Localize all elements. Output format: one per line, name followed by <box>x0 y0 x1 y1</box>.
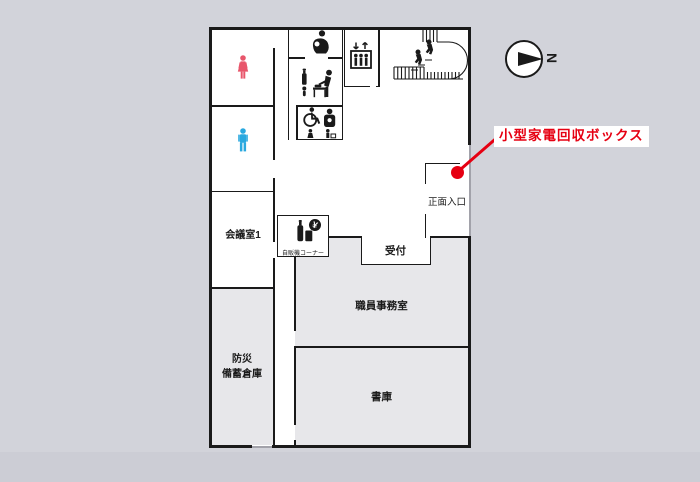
nursing-room-icon <box>309 30 330 56</box>
accessible-toilet-icon <box>302 107 339 139</box>
stairs-icon <box>393 28 469 84</box>
annotation-label: 小型家電回収ボックス <box>494 126 649 147</box>
wall <box>296 105 298 140</box>
wall <box>294 346 468 349</box>
floor-plan-map: ¥ 会議室1 防災 備蓄倉庫 職員事務室 書庫 受付 正面入口 自販機コーナー … <box>0 0 700 482</box>
meeting-room-label: 会議室1 <box>212 226 274 241</box>
disaster-storage-label: 防災 備蓄倉庫 <box>210 352 274 382</box>
wall <box>210 287 274 289</box>
wall <box>288 57 305 59</box>
wall <box>294 257 296 331</box>
wall <box>425 163 460 164</box>
reception-label: 受付 <box>361 243 430 258</box>
wall-outer-right <box>468 236 471 448</box>
wall <box>210 191 274 193</box>
wall <box>294 347 296 425</box>
north-arrow-triangle <box>518 52 543 66</box>
wall <box>425 214 426 238</box>
wall <box>376 86 380 88</box>
main-entrance-label: 正面入口 <box>424 194 470 208</box>
background-shade <box>0 452 700 482</box>
vending-corner-label: 自販機コーナー <box>276 248 330 257</box>
location-dot-icon <box>451 166 464 179</box>
wall <box>378 28 380 87</box>
wall-outer-bottom <box>272 445 471 448</box>
wall <box>288 28 290 140</box>
archive-label: 書庫 <box>295 389 468 404</box>
wall <box>294 440 296 445</box>
wall <box>273 48 275 160</box>
female-toilet-icon <box>236 55 250 81</box>
wall <box>344 28 346 87</box>
baby-changing-icon <box>299 67 335 100</box>
wall-outer-bottom <box>209 445 252 448</box>
elevator-icon <box>349 41 373 70</box>
wall <box>430 236 468 238</box>
vending-machine-icon: ¥ <box>294 217 324 247</box>
disaster-storage-label-line2: 備蓄倉庫 <box>210 367 274 382</box>
male-toilet-icon <box>236 128 250 154</box>
wall <box>361 264 431 265</box>
wall <box>425 163 426 184</box>
disaster-storage-label-line1: 防災 <box>210 352 274 367</box>
wall <box>210 105 274 107</box>
wall <box>344 86 370 88</box>
compass-north-label: N <box>544 53 560 63</box>
door-opening-line <box>252 446 272 448</box>
staff-office-label: 職員事務室 <box>295 298 468 313</box>
wall <box>324 236 362 238</box>
wall <box>328 57 343 59</box>
